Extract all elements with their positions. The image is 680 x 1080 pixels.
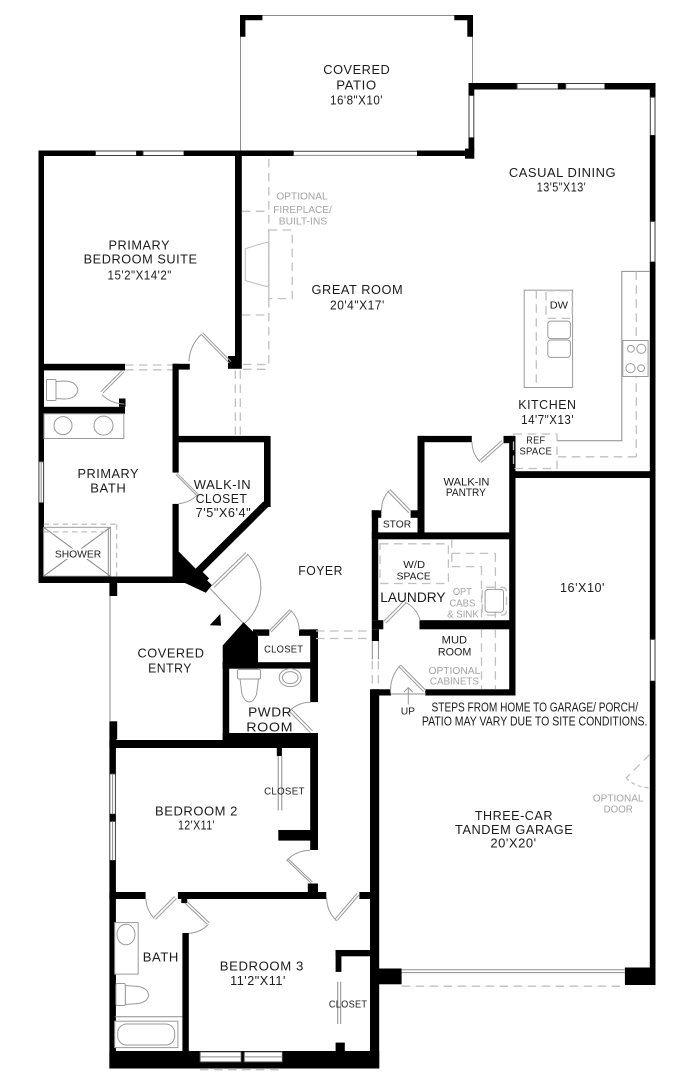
svg-text:CLOSET: CLOSET <box>329 999 367 1010</box>
svg-text:CABINETS: CABINETS <box>430 675 479 687</box>
svg-text:BATH: BATH <box>90 481 126 496</box>
svg-text:CASUAL DINING: CASUAL DINING <box>509 165 616 180</box>
svg-text:ROOM: ROOM <box>438 646 472 658</box>
svg-text:WALK-IN: WALK-IN <box>194 477 252 492</box>
svg-text:CLOSET: CLOSET <box>196 491 248 506</box>
svg-text:SPACE: SPACE <box>397 570 431 582</box>
svg-text:16'8"X10': 16'8"X10' <box>330 93 383 108</box>
svg-text:DW: DW <box>550 299 568 311</box>
svg-text:PATIO MAY VARY DUE TO SITE CON: PATIO MAY VARY DUE TO SITE CONDITIONS. <box>422 714 648 729</box>
svg-text:BUILT-INS: BUILT-INS <box>279 216 328 228</box>
svg-text:OPTIONAL: OPTIONAL <box>276 191 327 203</box>
svg-text:PRIMARY: PRIMARY <box>78 466 140 481</box>
svg-text:& SINK: & SINK <box>447 608 479 620</box>
svg-text:CLOSET: CLOSET <box>264 787 305 798</box>
svg-text:12'X11': 12'X11' <box>178 818 215 833</box>
svg-text:PRIMARY: PRIMARY <box>109 237 171 252</box>
svg-text:ROOM: ROOM <box>246 720 293 735</box>
svg-text:MUD: MUD <box>442 634 467 646</box>
svg-text:STEPS FROM HOME TO GARAGE/ POR: STEPS FROM HOME TO GARAGE/ PORCH/ <box>432 700 639 715</box>
svg-text:ENTRY: ENTRY <box>148 661 192 676</box>
svg-text:20'4"X17': 20'4"X17' <box>330 297 385 312</box>
svg-text:UP: UP <box>401 706 415 718</box>
svg-text:PATIO: PATIO <box>336 77 377 92</box>
svg-text:11'2"X11': 11'2"X11' <box>230 973 286 988</box>
svg-text:KITCHEN: KITCHEN <box>518 397 576 412</box>
svg-text:DOOR: DOOR <box>604 804 634 816</box>
svg-text:13'5"X13': 13'5"X13' <box>537 179 586 194</box>
svg-text:PANTRY: PANTRY <box>446 487 487 499</box>
svg-text:OPT: OPT <box>453 586 472 598</box>
svg-text:14'7"X13': 14'7"X13' <box>521 412 574 427</box>
svg-text:COVERED: COVERED <box>138 645 205 660</box>
svg-text:BEDROOM 2: BEDROOM 2 <box>155 803 238 818</box>
svg-text:FIREPLACE/: FIREPLACE/ <box>273 204 332 216</box>
svg-text:REF: REF <box>526 435 545 446</box>
svg-text:15'2"X14'2": 15'2"X14'2" <box>108 267 172 282</box>
svg-text:PWDR: PWDR <box>248 704 292 719</box>
svg-text:STOR: STOR <box>383 519 412 531</box>
svg-text:20'X20': 20'X20' <box>490 835 536 850</box>
svg-text:16'X10': 16'X10' <box>560 580 605 595</box>
svg-text:SPACE: SPACE <box>520 446 553 457</box>
svg-text:LAUNDRY: LAUNDRY <box>380 589 446 605</box>
svg-text:GREAT ROOM: GREAT ROOM <box>312 282 404 297</box>
svg-text:W/D: W/D <box>403 559 425 571</box>
svg-text:BATH: BATH <box>143 950 179 965</box>
svg-text:7'5"X6'4": 7'5"X6'4" <box>196 505 252 520</box>
svg-text:COVERED: COVERED <box>323 62 390 77</box>
svg-text:BEDROOM SUITE: BEDROOM SUITE <box>84 252 198 267</box>
svg-text:SHOWER: SHOWER <box>55 549 102 561</box>
svg-text:FOYER: FOYER <box>298 563 343 578</box>
svg-text:BEDROOM 3: BEDROOM 3 <box>220 958 304 973</box>
svg-text:CLOSET: CLOSET <box>264 644 303 655</box>
